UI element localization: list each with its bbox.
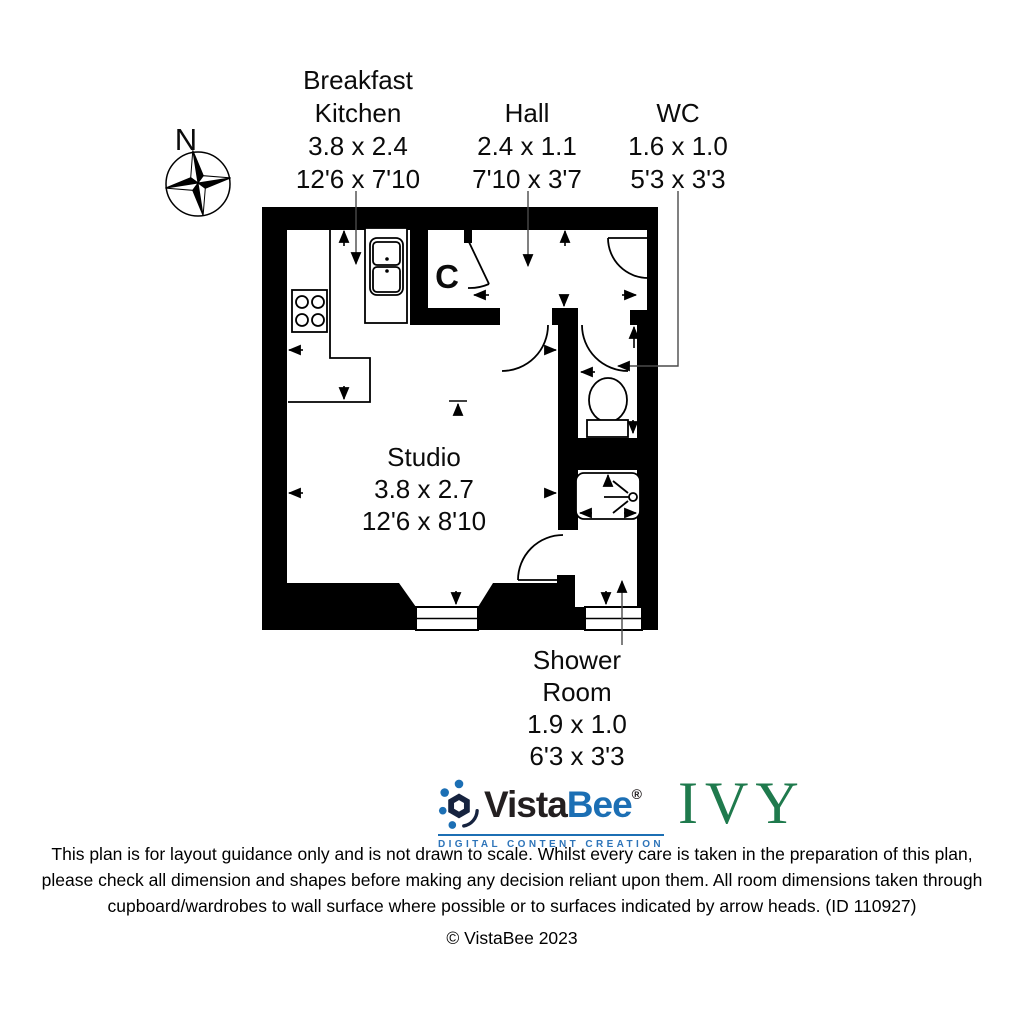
disclaimer-line: cupboard/wardrobes to wall surface where… bbox=[0, 893, 1024, 919]
wall-left bbox=[262, 207, 287, 630]
copyright-line: © VistaBee 2023 bbox=[0, 925, 1024, 951]
room-dim-imperial: 5'3 x 3'3 bbox=[630, 164, 725, 194]
room-label-shower-room: Shower Room 1.9 x 1.0 6'3 x 3'3 bbox=[527, 645, 627, 771]
wall-kitchen-closet bbox=[410, 228, 428, 310]
floorplan-page: N bbox=[0, 0, 1024, 1011]
disclaimer: This plan is for layout guidance only an… bbox=[0, 841, 1024, 951]
wall-middle-vertical bbox=[558, 322, 578, 530]
wall-entrance-jamb bbox=[630, 310, 658, 325]
room-name: Room bbox=[542, 677, 611, 707]
room-dim-metric: 1.6 x 1.0 bbox=[628, 131, 728, 161]
entrance-door bbox=[608, 238, 648, 278]
closet-label: C bbox=[435, 258, 459, 295]
room-labels: Breakfast Kitchen 3.8 x 2.4 12'6 x 7'10 … bbox=[296, 65, 728, 771]
room-name: Shower bbox=[533, 645, 621, 675]
shower-window bbox=[585, 607, 642, 630]
vistabee-logo: VistaBee® DIGITAL CONTENT CREATION IVY bbox=[438, 777, 806, 850]
room-label-hall: Hall 2.4 x 1.1 7'10 x 3'7 bbox=[472, 98, 582, 194]
logo-text-vista: Vista bbox=[484, 784, 567, 825]
wall-right-upper bbox=[647, 230, 658, 310]
room-dim-imperial: 12'6 x 8'10 bbox=[362, 506, 486, 536]
disclaimer-line: This plan is for layout guidance only an… bbox=[0, 841, 1024, 867]
logo-text-bee: Bee bbox=[567, 784, 632, 825]
compass-rose: N bbox=[165, 122, 230, 216]
dimension-arrows bbox=[289, 231, 636, 604]
room-name: WC bbox=[656, 98, 699, 128]
wall-bay-right bbox=[478, 583, 557, 630]
closet-door bbox=[468, 240, 489, 288]
room-dim-metric: 1.9 x 1.0 bbox=[527, 709, 627, 739]
studio-window bbox=[416, 607, 478, 630]
vistabee-bee-icon bbox=[438, 777, 480, 831]
sink-icon bbox=[365, 228, 407, 323]
room-dim-imperial: 12'6 x 7'10 bbox=[296, 164, 420, 194]
disclaimer-line: please check all dimension and shapes be… bbox=[0, 867, 1024, 893]
wall-hall-bottom-left bbox=[410, 308, 500, 325]
wall-bay-left bbox=[287, 583, 416, 630]
shower-door bbox=[518, 535, 563, 580]
room-dim-metric: 3.8 x 2.4 bbox=[308, 131, 408, 161]
room-dim-imperial: 7'10 x 3'7 bbox=[472, 164, 582, 194]
vistabee-logo-left: VistaBee® DIGITAL CONTENT CREATION bbox=[438, 777, 664, 850]
hob-icon bbox=[292, 290, 327, 332]
room-label-breakfast-kitchen: Breakfast Kitchen 3.8 x 2.4 12'6 x 7'10 bbox=[296, 65, 420, 194]
development-name: IVY bbox=[678, 773, 806, 833]
room-dim-imperial: 6'3 x 3'3 bbox=[529, 741, 624, 771]
floor-plan-drawing: N bbox=[0, 0, 1024, 775]
wall-shower-sill-left bbox=[575, 607, 585, 630]
room-name: Studio bbox=[387, 442, 461, 472]
vistabee-wordmark: VistaBee® bbox=[484, 786, 642, 823]
wall-shower-sill-right bbox=[642, 607, 658, 630]
room-name: Hall bbox=[505, 98, 550, 128]
room-label-studio: Studio 3.8 x 2.7 12'6 x 8'10 bbox=[362, 442, 486, 536]
studio-door bbox=[502, 325, 548, 371]
wall-top bbox=[262, 207, 658, 230]
room-dim-metric: 3.8 x 2.7 bbox=[374, 474, 474, 504]
room-label-wc: WC 1.6 x 1.0 5'3 x 3'3 bbox=[628, 98, 728, 194]
wall-wc-shower bbox=[578, 438, 657, 470]
room-dim-metric: 2.4 x 1.1 bbox=[477, 131, 577, 161]
wc-door bbox=[582, 325, 628, 371]
toilet-icon bbox=[587, 378, 628, 437]
wall-shower-door-jamb bbox=[557, 575, 575, 630]
room-name: Kitchen bbox=[315, 98, 402, 128]
registered-mark: ® bbox=[632, 786, 642, 802]
room-name: Breakfast bbox=[303, 65, 414, 95]
